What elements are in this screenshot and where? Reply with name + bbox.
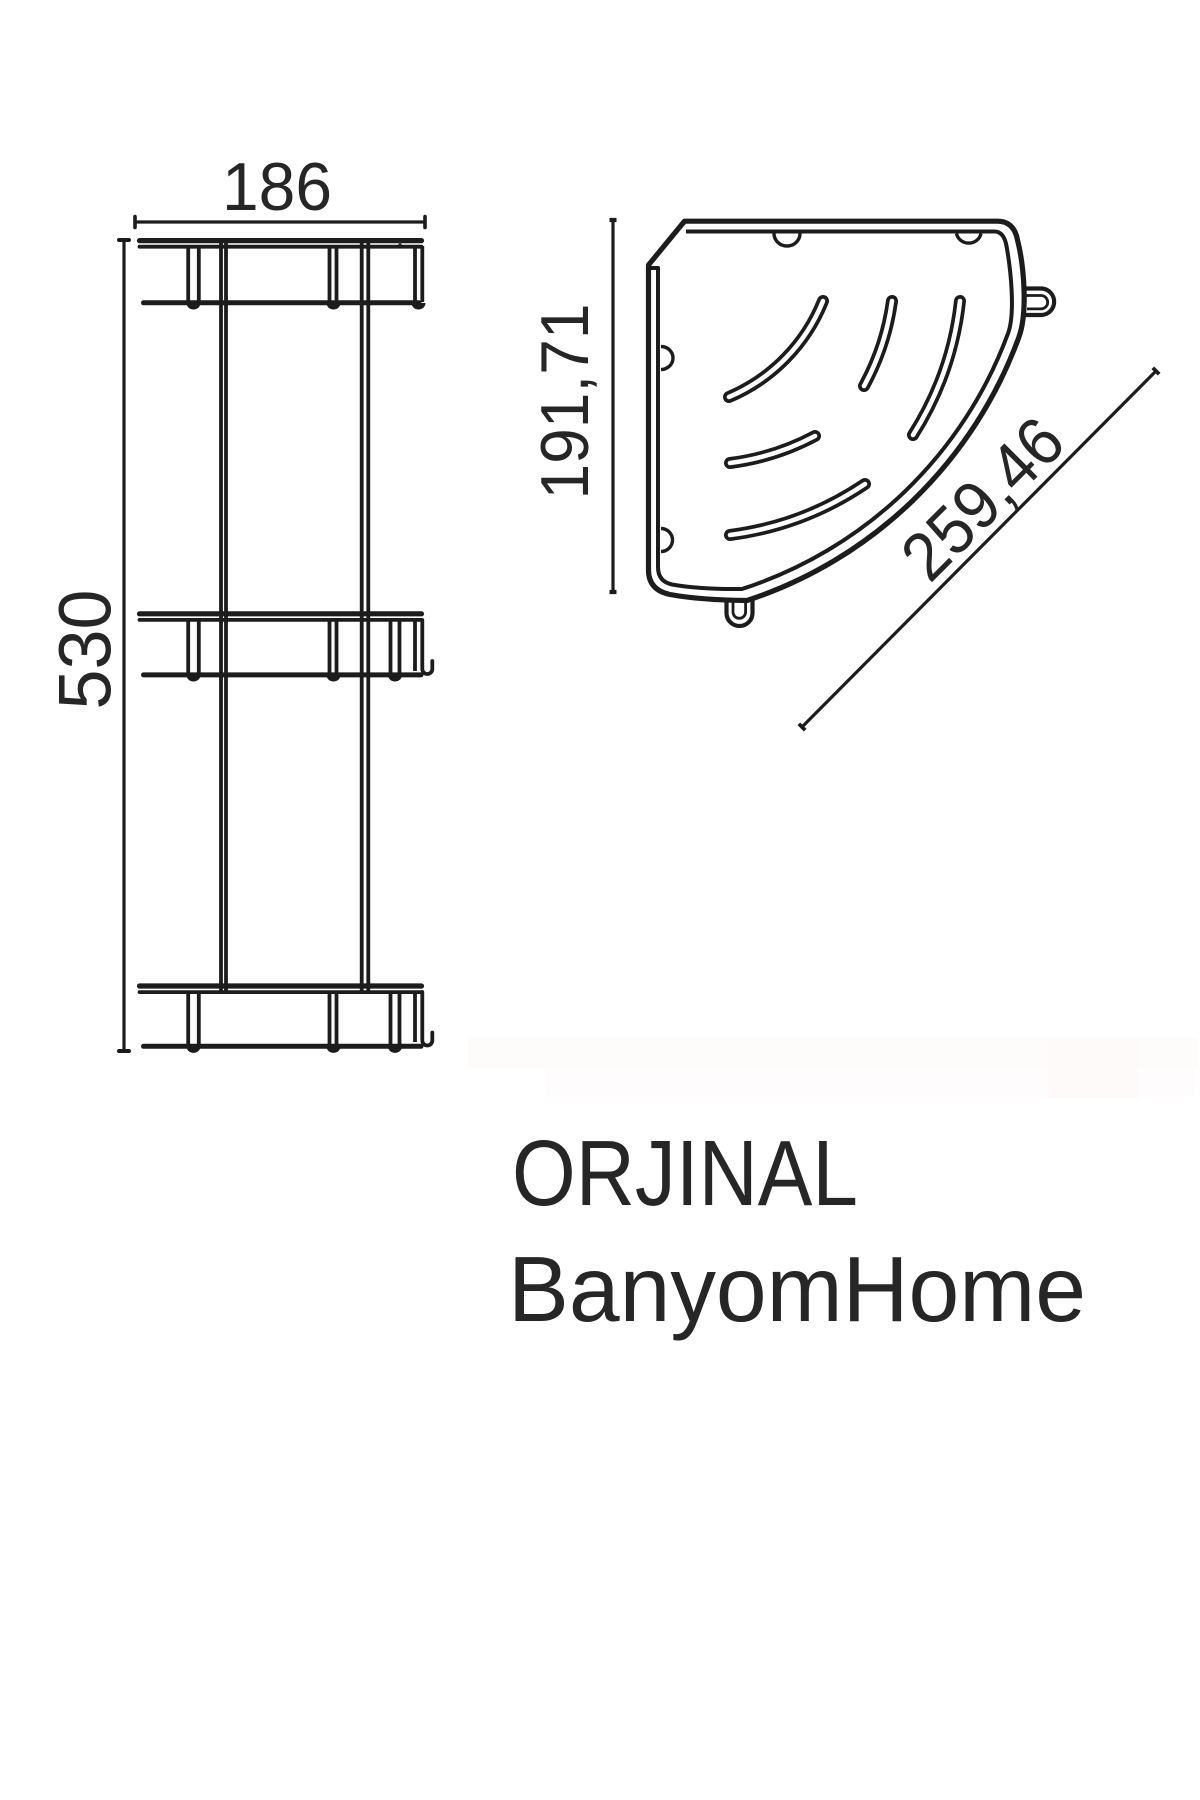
svg-text:191,71: 191,71 xyxy=(527,304,603,500)
svg-text:ORJINAL: ORJINAL xyxy=(512,1121,858,1225)
svg-text:BanyomHome: BanyomHome xyxy=(508,1237,1086,1341)
svg-text:530: 530 xyxy=(44,590,127,710)
svg-text:186: 186 xyxy=(222,149,332,225)
